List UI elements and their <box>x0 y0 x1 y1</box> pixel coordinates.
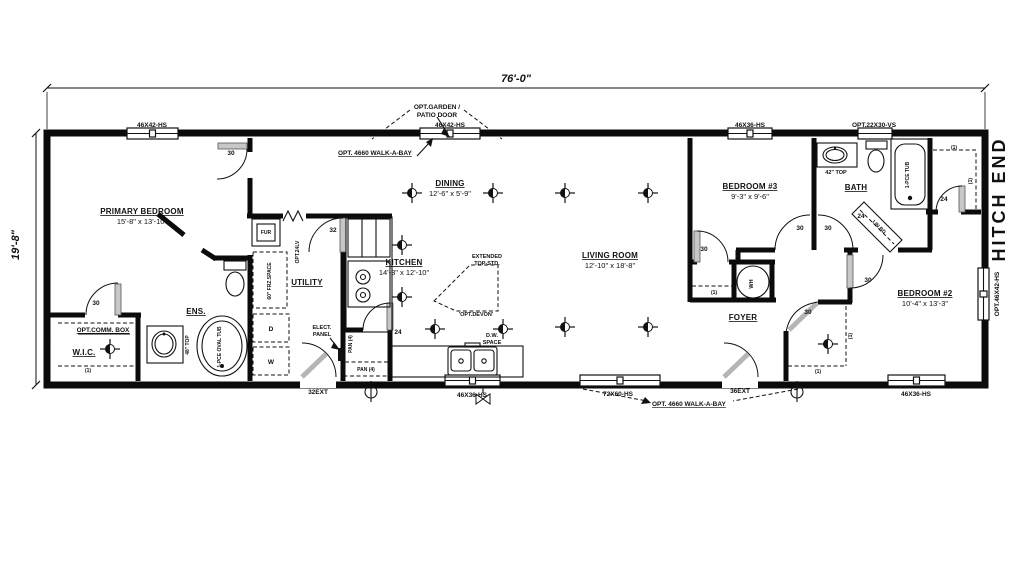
note-garden-door: OPT.GARDEN / <box>414 104 460 111</box>
window-label: OPT.46X42-HS <box>994 271 1001 316</box>
window-label: 46X36-HS <box>735 122 766 129</box>
ensuite-toilet <box>224 261 246 296</box>
window <box>127 128 178 139</box>
overall-depth-dimension: 19'-8" <box>10 229 22 260</box>
ceiling-light-icon <box>392 235 412 255</box>
ceiling-lights <box>100 183 838 359</box>
door-size: 30 <box>804 309 812 316</box>
shelf-mark: (1) <box>951 145 957 151</box>
window-label: 46X42-HS <box>137 122 168 129</box>
room-label-ensuite: ENS. <box>186 307 205 316</box>
shelf-mark: (1) <box>711 290 717 296</box>
door-size: 30 <box>92 300 100 307</box>
refrigerator <box>348 219 390 257</box>
window-label: 72X60-HS <box>603 391 634 398</box>
door-arc <box>309 218 343 252</box>
window <box>728 128 772 139</box>
label-bath-tub: 1-PCE TUB <box>905 161 911 188</box>
label-pantry-base: PAN (4) <box>357 367 375 373</box>
electrical-panel <box>338 348 343 361</box>
door-size: 24 <box>940 196 948 203</box>
ceiling-light-icon <box>100 339 120 359</box>
kitchen-counter <box>392 346 523 377</box>
room-size-primary-bedroom: 15'-8" x 13'-10" <box>117 217 168 226</box>
window <box>420 128 480 139</box>
door-leaf <box>340 218 346 252</box>
door-leaf <box>218 143 247 149</box>
ceiling-light-icon <box>392 287 412 307</box>
label-freezer-space: 60" FRZ.SPACE <box>267 262 273 300</box>
floor-plan-canvas: 76'-0" 19'-8" HITCH END <box>0 0 1024 570</box>
floor-plan-drawing: 76'-0" 19'-8" HITCH END <box>0 0 1024 570</box>
door-leaf <box>847 255 853 288</box>
window <box>580 375 660 386</box>
door-leaf <box>115 284 121 315</box>
ceiling-light-icon <box>555 317 575 337</box>
room-label-bath: BATH <box>845 183 867 192</box>
room-size-kitchen: 14'-3" x 12'-10" <box>379 268 430 277</box>
label-water-heater: WH <box>749 279 755 288</box>
overall-width-dimension: 76'-0" <box>501 73 532 85</box>
room-label-bedroom-3: BEDROOM #3 <box>723 182 778 191</box>
note-comm-box: OPT.COMM. BOX <box>77 327 130 334</box>
ceiling-light-icon <box>638 317 658 337</box>
note-walkabay-bottom: OPT. 4660 WALK-A-BAY <box>652 401 726 408</box>
window <box>888 375 945 386</box>
door-size: 30 <box>227 150 235 157</box>
bath-toilet <box>866 141 887 172</box>
door-arc <box>775 215 810 250</box>
kitchen-sink <box>448 343 497 375</box>
door-size: 32EXT <box>308 389 328 396</box>
room-label-kitchen: KITCHEN <box>386 258 423 267</box>
dashed-details <box>58 110 976 401</box>
door-arc <box>86 283 118 315</box>
window-label: 46X42-HS <box>435 122 466 129</box>
note-extended-top: TOP-STD. <box>474 261 500 267</box>
door-leaf <box>694 231 700 262</box>
door-leaf <box>959 186 965 212</box>
window-label: OPT.22X30-VS <box>852 122 897 129</box>
label-washer: W <box>268 359 275 366</box>
ceiling-light-icon <box>483 183 503 203</box>
room-size-bedroom-3: 9'-3" x 9'-6" <box>731 192 769 201</box>
label-louver-door: OPT.24LV <box>295 240 301 263</box>
door-size: 36EXT <box>730 388 750 395</box>
door-size: 30 <box>700 246 708 253</box>
ceiling-light-icon <box>638 183 658 203</box>
ceiling-light-icon <box>555 183 575 203</box>
label-furnace: FUR <box>261 230 272 236</box>
room-label-primary-bedroom: PRIMARY BEDROOM <box>100 207 184 216</box>
label-pantry: PAN (4) <box>348 335 354 353</box>
door-size: 30 <box>824 225 832 232</box>
door-arc <box>818 215 853 250</box>
note-dw-space: D.W. <box>486 333 498 339</box>
shelf-mark: (1) <box>815 369 821 375</box>
note-walkabay-top: OPT. 4660 WALK-A-BAY <box>338 150 412 157</box>
shelf-mark: (1) <box>848 333 854 339</box>
window-label: 46X36-HS <box>901 391 932 398</box>
door-size: 24 <box>857 213 865 220</box>
label-linen: LIN BD <box>871 219 887 235</box>
note-elect-panel: PANEL <box>313 332 332 338</box>
room-label-wic: W.I.C. <box>73 348 96 357</box>
room-label-utility: UTILITY <box>291 278 323 287</box>
label-ens-vanity: 48" TOP <box>185 335 191 355</box>
door-leaf <box>724 354 748 377</box>
note-opt-devon: 'OPT.DEVON' <box>459 312 494 318</box>
ceiling-light-icon <box>402 183 422 203</box>
note-dw-space: SPACE <box>483 340 502 346</box>
ensuite-vanity-sink <box>147 326 183 363</box>
note-elect-panel: ELECT. <box>313 325 332 331</box>
label-oval-tub: 1-PCE OVAL TUB <box>217 326 223 368</box>
note-extended-top: EXTENDED <box>472 254 502 260</box>
room-label-dining: DINING <box>435 179 464 188</box>
note-garden-door: PATIO DOOR <box>417 112 458 119</box>
room-size-living-room: 12'-10" x 18'-8" <box>585 261 636 270</box>
room-size-bedroom-2: 10'-4" x 13'-3" <box>902 299 948 308</box>
ceiling-light-icon <box>818 334 838 354</box>
optional-island-counter <box>434 265 498 311</box>
door-size: 32 <box>329 227 337 234</box>
hitch-end-label: HITCH END <box>989 137 1009 262</box>
door-size: 30 <box>864 277 872 284</box>
window-label: 46X36-HS <box>457 392 488 399</box>
window <box>978 268 989 320</box>
room-label-living-room: LIVING ROOM <box>582 251 638 260</box>
shelf-mark: (1) <box>968 178 974 184</box>
door-size: 24 <box>394 329 402 336</box>
door-leaf <box>302 354 326 377</box>
louver-door-icon <box>283 211 303 221</box>
shelf-mark: (1) <box>45 340 51 346</box>
door-size: 30 <box>796 225 804 232</box>
label-bath-vanity: 42" TOP <box>825 170 847 176</box>
ceiling-light-icon <box>425 319 445 339</box>
room-label-foyer: FOYER <box>729 313 758 322</box>
bath-vanity-sink <box>817 143 857 167</box>
room-size-dining: 12'-6" x 5'-9" <box>429 189 471 198</box>
window <box>858 128 892 139</box>
room-label-bedroom-2: BEDROOM #2 <box>898 289 953 298</box>
label-dryer: D <box>269 326 274 333</box>
shelf-mark: (1) <box>85 368 91 374</box>
